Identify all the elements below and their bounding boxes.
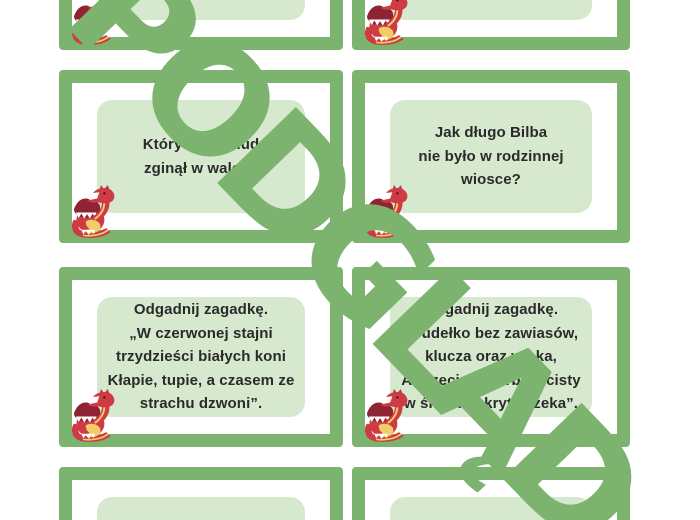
text-line: strachu dzwoni”. — [108, 392, 295, 416]
question-card-bilbo: Jak długo Bilba nie było w rodzinnej wio… — [352, 70, 630, 243]
text-line: Odgadnij zagadkę. — [108, 298, 295, 322]
dragon-icon — [361, 388, 417, 446]
card-text: Odgadnij zagadkę. „Pudełko bez zawiasów,… — [401, 298, 581, 416]
text-line: „W czerwonej stajni — [108, 322, 295, 346]
card-panel — [390, 497, 592, 520]
card-panel: Który krasnolud zginął w walce? — [97, 100, 305, 213]
text-line: Który krasnolud — [143, 133, 260, 157]
text-line: Jak długo Bilba — [418, 121, 563, 145]
text-line: „Pudełko bez zawiasów, — [401, 322, 581, 346]
question-card-dwarf: Który krasnolud zginął w walce? — [59, 70, 343, 243]
text-line: klucza oraz wieka, — [401, 345, 581, 369]
dragon-icon — [361, 0, 417, 49]
riddle-card-egg: Odgadnij zagadkę. „Pudełko bez zawiasów,… — [352, 267, 630, 447]
dragon-icon — [361, 184, 417, 242]
card-text: Odgadnij zagadkę. „W czerwonej stajni tr… — [108, 298, 295, 416]
text-line: A przecież skarb złocisty — [401, 369, 581, 393]
question-card — [352, 467, 630, 520]
text-line: trzydzieści białych koni — [108, 345, 295, 369]
card-panel — [97, 0, 305, 20]
text-line: wiosce? — [418, 168, 563, 192]
question-card — [59, 467, 343, 520]
dragon-icon — [68, 184, 124, 242]
card-panel: Odgadnij zagadkę. „Pudełko bez zawiasów,… — [390, 297, 592, 417]
dragon-icon — [68, 0, 124, 49]
card-panel: Odgadnij zagadkę. „W czerwonej stajni tr… — [97, 297, 305, 417]
card-text: Który krasnolud zginął w walce? — [143, 133, 260, 180]
question-card — [59, 0, 343, 50]
text-line: nie było w rodzinnej — [418, 145, 563, 169]
card-panel — [390, 0, 592, 20]
card-text: Jak długo Bilba nie było w rodzinnej wio… — [418, 121, 563, 192]
text-line: Kłapie, tupie, a czasem ze — [108, 369, 295, 393]
text-line: Odgadnij zagadkę. — [401, 298, 581, 322]
card-panel: Jak długo Bilba nie było w rodzinnej wio… — [390, 100, 592, 213]
dragon-icon — [68, 388, 124, 446]
worksheet-preview-page: Który krasnolud zginął w walce? Jak dług… — [0, 0, 700, 520]
text-line: w środku ukryty czeka”. — [401, 392, 581, 416]
question-card — [352, 0, 630, 50]
text-line: zginął w walce? — [143, 157, 260, 181]
riddle-card-teeth: Odgadnij zagadkę. „W czerwonej stajni tr… — [59, 267, 343, 447]
card-panel — [97, 497, 305, 520]
